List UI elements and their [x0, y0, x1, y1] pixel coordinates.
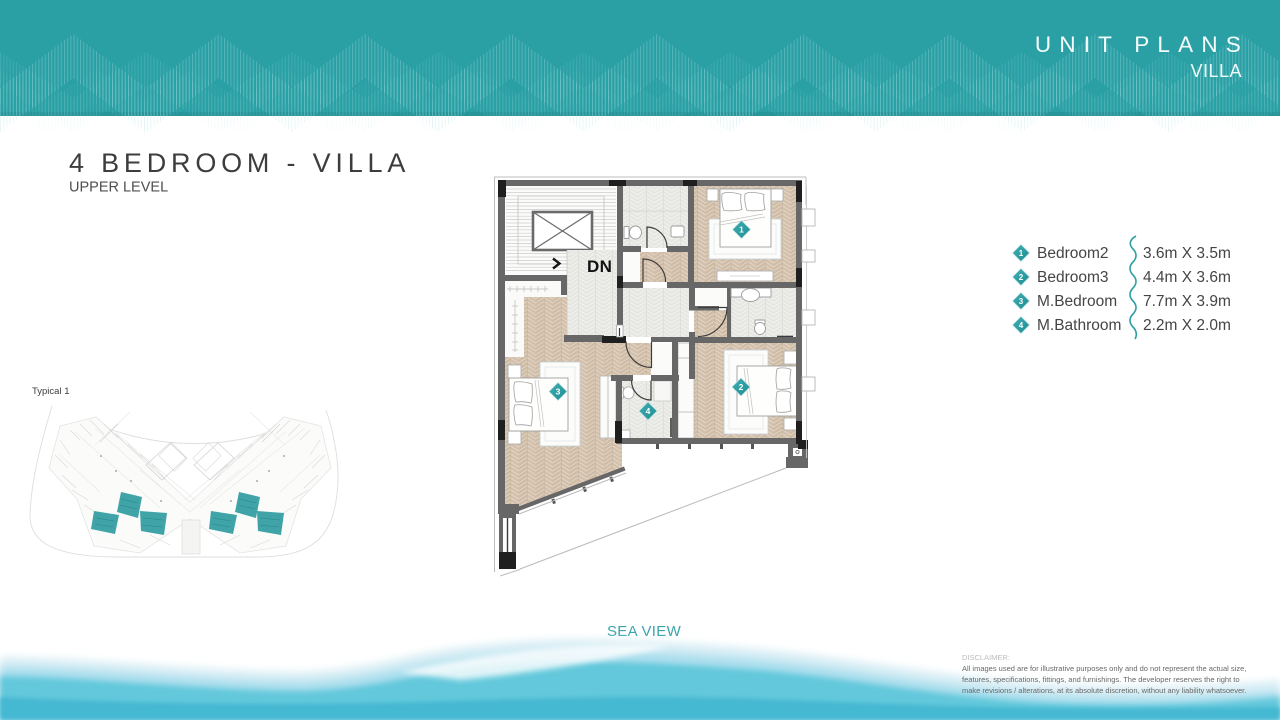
svg-text:2: 2 — [1019, 273, 1024, 282]
svg-text:2: 2 — [739, 382, 744, 392]
svg-text:4: 4 — [1019, 321, 1024, 330]
svg-text:4.4m X 3.6m: 4.4m X 3.6m — [1143, 269, 1231, 286]
svg-text:7.7m X 3.9m: 7.7m X 3.9m — [1143, 293, 1231, 310]
svg-text:make revisions / alterations,: make revisions / alterations, at its abs… — [962, 686, 1246, 695]
svg-text:3: 3 — [556, 387, 561, 397]
svg-text:M.Bathroom: M.Bathroom — [1037, 317, 1121, 334]
svg-text:features, specifications, fitt: features, specifications, fittings, and … — [962, 675, 1240, 684]
svg-text:3: 3 — [1019, 297, 1024, 306]
svg-text:DISCLAIMER:: DISCLAIMER: — [962, 653, 1010, 662]
svg-text:4 BEDROOM - VILLA: 4 BEDROOM - VILLA — [69, 148, 410, 178]
svg-text:3.6m X 3.5m: 3.6m X 3.5m — [1143, 245, 1231, 262]
svg-text:Bedroom3: Bedroom3 — [1037, 269, 1109, 286]
svg-text:All images used are for illust: All images used are for illustrative pur… — [962, 664, 1246, 673]
svg-text:UNIT PLANS: UNIT PLANS — [1035, 32, 1249, 57]
svg-text:1: 1 — [1019, 249, 1024, 258]
svg-text:UPPER LEVEL: UPPER LEVEL — [69, 180, 168, 196]
svg-text:VILLA: VILLA — [1190, 61, 1242, 81]
svg-text:DN: DN — [587, 257, 612, 276]
svg-text:SEA VIEW: SEA VIEW — [607, 623, 682, 640]
svg-text:2.2m X 2.0m: 2.2m X 2.0m — [1143, 317, 1231, 334]
svg-text:M.Bedroom: M.Bedroom — [1037, 293, 1117, 310]
svg-text:Bedroom2: Bedroom2 — [1037, 245, 1109, 262]
svg-text:4: 4 — [646, 406, 651, 416]
svg-text:1: 1 — [739, 225, 744, 235]
svg-text:Typical 1: Typical 1 — [32, 386, 70, 397]
